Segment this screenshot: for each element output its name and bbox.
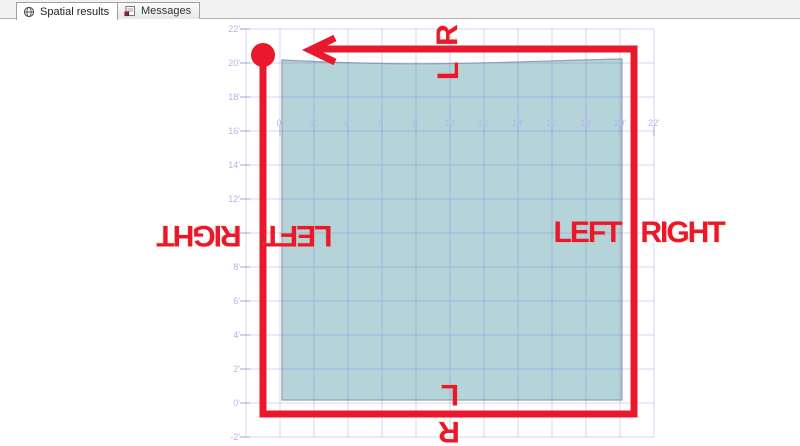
spatial-polygon: [282, 59, 622, 400]
spatial-viewport[interactable]: 0'2'4'6'8'10'12'14'16'18'20'22'22'20'18'…: [0, 0, 800, 446]
tab-messages[interactable]: Messages: [117, 2, 200, 19]
messages-icon: [124, 5, 136, 17]
tab-spatial-results[interactable]: Spatial results: [16, 2, 118, 20]
spatial-results-pane: Spatial results Messages 0'2'4'6'8'10'12…: [0, 0, 800, 446]
globe-icon: [23, 6, 35, 18]
spatial-grid-svg: [0, 0, 800, 446]
results-tab-bar: Spatial results Messages: [0, 0, 800, 19]
tab-label: Messages: [141, 5, 191, 17]
tab-label: Spatial results: [40, 6, 109, 18]
